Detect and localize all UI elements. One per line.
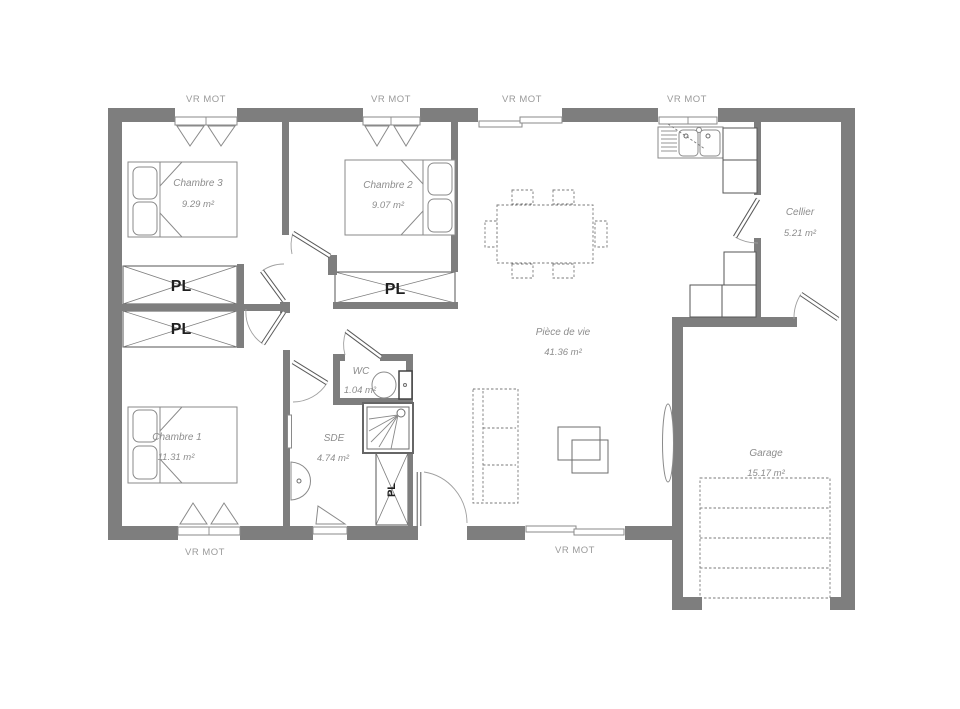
dining-table <box>485 190 607 278</box>
bed-chambre2 <box>345 160 455 235</box>
chambre3-name: Chambre 3 <box>173 178 223 189</box>
cellier-name: Cellier <box>786 207 815 218</box>
closet-chambre1-label: PL <box>171 321 192 338</box>
door-sde <box>293 362 327 402</box>
kitchen-sink-unit <box>658 124 723 158</box>
garage-area: 15.17 m² <box>747 468 785 479</box>
closet-chambre2-label: PL <box>385 281 406 298</box>
toilet <box>372 371 412 399</box>
vr-mot-label-top-1: VR MOT <box>186 94 226 105</box>
chambre2-name: Chambre 2 <box>363 180 413 191</box>
window-chambre3 <box>175 117 237 146</box>
sofa <box>473 389 518 503</box>
door-entry <box>419 472 467 526</box>
wc-name: WC <box>353 366 370 377</box>
sde-area: 4.74 m² <box>317 453 350 464</box>
chambre2-area: 9.07 m² <box>372 200 405 211</box>
sde-name: SDE <box>324 433 345 444</box>
chambre1-area: 11.31 m² <box>158 452 196 463</box>
door-cellier <box>735 199 758 243</box>
chambre3-area: 9.29 m² <box>182 199 215 210</box>
window-bay-sliding-bottom <box>526 526 624 535</box>
window-living-sliding-top <box>479 117 562 127</box>
wc-area: 1.04 m² <box>344 385 377 396</box>
closet-entry-label: PL <box>386 483 398 497</box>
door-chambre2 <box>291 233 330 256</box>
bed-chambre1 <box>128 407 237 483</box>
piece-de-vie-name: Pièce de vie <box>536 327 591 338</box>
vr-mot-label-bottom-2: VR MOT <box>555 545 595 556</box>
floor-plan-drawing: VR MOT VR MOT VR MOT VR MOT VR MOT VR MO… <box>0 0 960 709</box>
vr-mot-label-top-2: VR MOT <box>371 94 411 105</box>
bathroom-sink <box>288 415 311 500</box>
vr-mot-label-top-3: VR MOT <box>502 94 542 105</box>
shower <box>363 403 413 453</box>
chambre1-name: Chambre 1 <box>152 432 201 443</box>
window-sde <box>313 506 347 534</box>
radiator <box>663 404 674 482</box>
coffee-table <box>558 427 608 473</box>
window-chambre1 <box>178 503 240 535</box>
window-kitchen <box>659 117 717 124</box>
door-cellier-garage <box>794 294 838 319</box>
door-wc <box>344 331 381 357</box>
vr-mot-label-top-4: VR MOT <box>667 94 707 105</box>
garage-door <box>700 478 830 598</box>
cellier-area: 5.21 m² <box>784 228 817 239</box>
piece-de-vie-area: 41.36 m² <box>544 347 582 358</box>
floor-plan: VR MOT VR MOT VR MOT VR MOT VR MOT VR MO… <box>0 0 960 709</box>
window-chambre2 <box>363 117 420 146</box>
door-chambre1 <box>246 309 284 344</box>
door-chambre3 <box>262 264 284 301</box>
vr-mot-label-bottom-1: VR MOT <box>185 547 225 558</box>
closet-chambre3-label: PL <box>171 278 192 295</box>
garage-name: Garage <box>749 448 783 459</box>
